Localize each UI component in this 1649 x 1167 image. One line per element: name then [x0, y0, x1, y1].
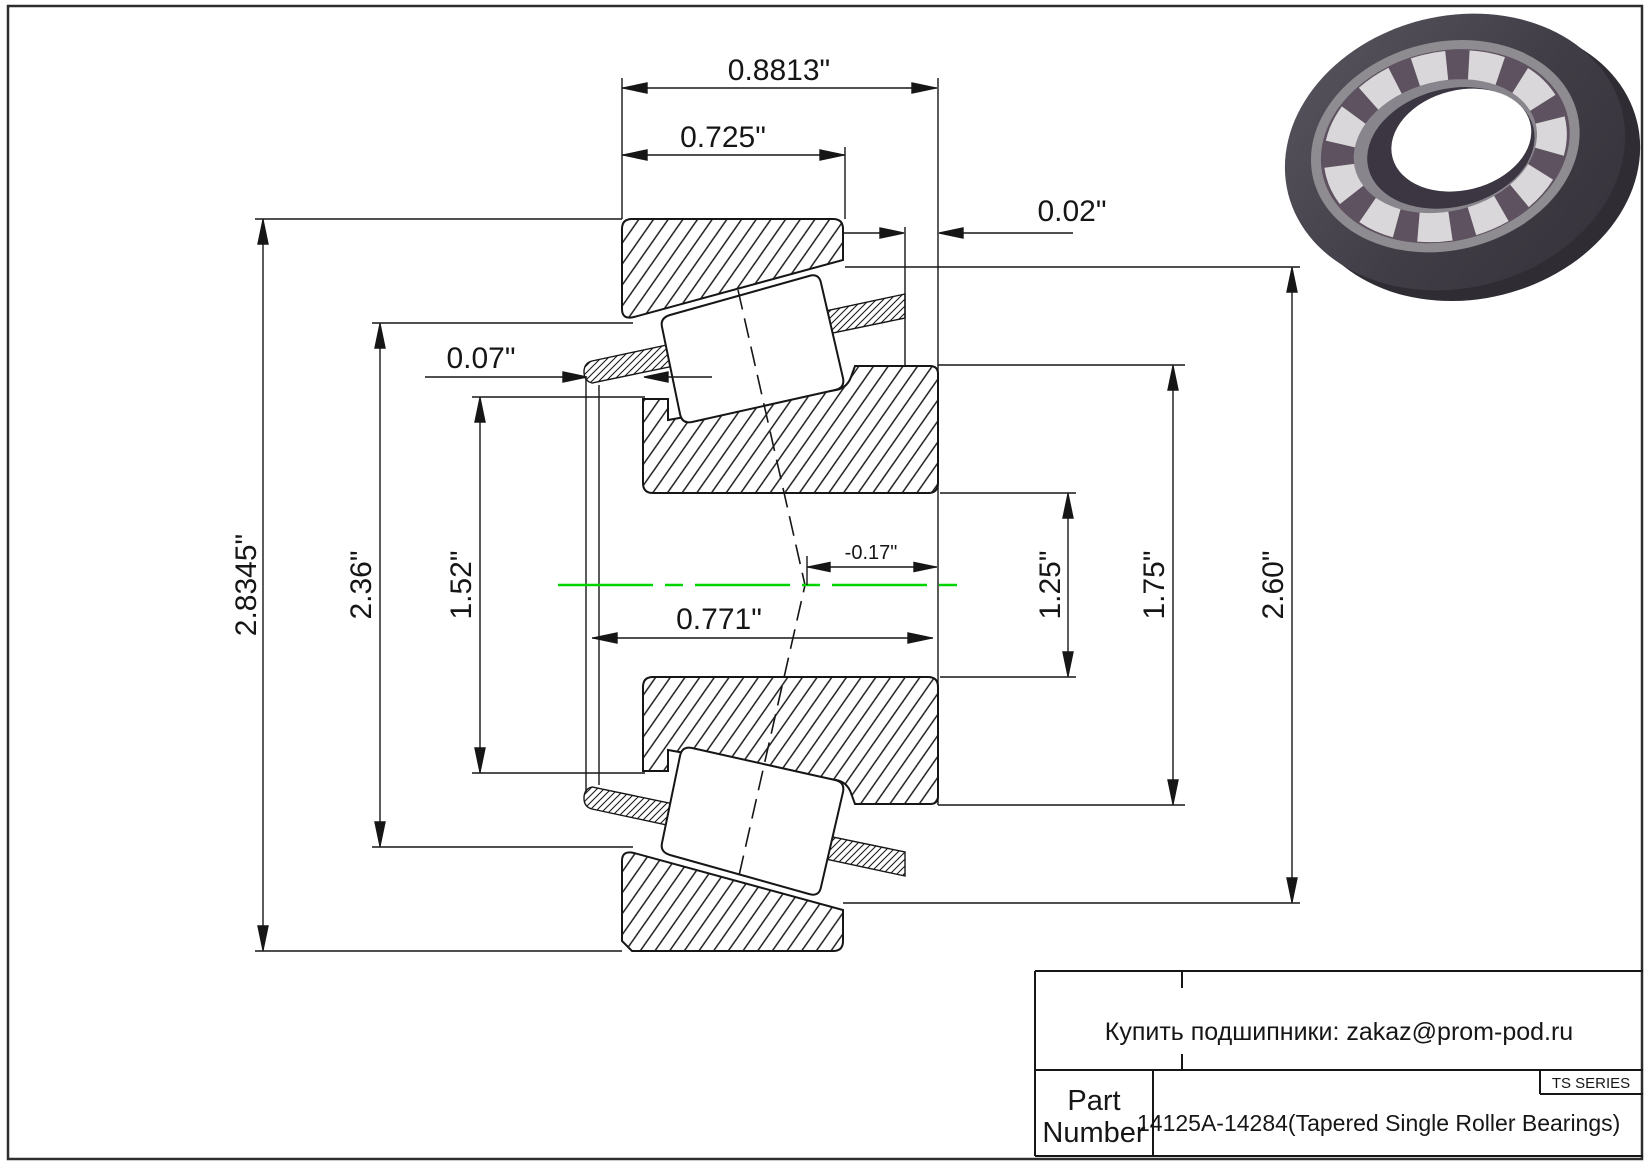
dim-cone-width	[592, 633, 933, 643]
dim-label-cup-width: 0.725"	[680, 121, 766, 154]
drawing-page: 0.8813" 0.725" 0.02" 0.07" 0.771" -0.17"…	[0, 0, 1649, 1167]
dim-label-backface-stickout: 0.02"	[1037, 195, 1106, 228]
bearing-drawing-canvas: 0.8813" 0.725" 0.02" 0.07" 0.771" -0.17"…	[0, 0, 1649, 1167]
title-block-text: Купить подшипники: zakaz@prom-pod.ru TS …	[1042, 1018, 1630, 1149]
bearing-3d-image	[1255, 0, 1649, 339]
part-number-label-line1: Part	[1067, 1085, 1120, 1117]
dim-label-cage-lip: 0.07"	[446, 342, 515, 375]
contact-text: Купить подшипники: zakaz@prom-pod.ru	[1105, 1018, 1573, 1046]
dim-label-shoulder-diameter: 2.60"	[1257, 550, 1290, 619]
dim-label-cone-width: 0.771"	[676, 603, 762, 636]
dim-label-front-rib-diameter: 1.52"	[445, 550, 478, 619]
dim-label-cup-front-diameter: 2.36"	[345, 550, 378, 619]
dim-label-back-rib-diameter: 1.75"	[1138, 550, 1171, 619]
series-label: TS SERIES	[1552, 1075, 1630, 1092]
dim-label-overall-width: 0.8813"	[728, 54, 830, 87]
dim-label-load-center: -0.17"	[845, 542, 898, 564]
dim-backface-stickout	[843, 228, 1073, 238]
dim-label-bore-diameter: 1.25"	[1034, 550, 1067, 619]
part-number-value: 14125A-14284(Tapered Single Roller Beari…	[1137, 1110, 1620, 1136]
part-number-label-line2: Number	[1042, 1117, 1145, 1149]
dim-label-outer-diameter: 2.8345"	[230, 534, 263, 636]
